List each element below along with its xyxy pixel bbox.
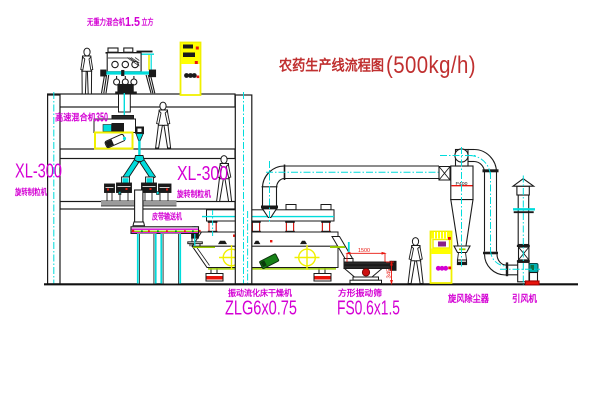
svg-text:旋风除尘器: 旋风除尘器 — [447, 293, 489, 305]
svg-text:ZLG6x0.75: ZLG6x0.75 — [225, 298, 297, 320]
svg-text:方形振动筛: 方形振动筛 — [338, 288, 383, 298]
svg-text:350: 350 — [96, 111, 108, 125]
svg-text:旋转制粒机: 旋转制粒机 — [14, 187, 47, 197]
svg-text:无重力混合机: 无重力混合机 — [86, 17, 125, 27]
svg-text:XL-300: XL-300 — [177, 163, 228, 185]
svg-text:1.5: 1.5 — [125, 15, 140, 29]
svg-text:FS0.6x1.5: FS0.6x1.5 — [337, 298, 400, 320]
svg-text:旋转制粒机: 旋转制粒机 — [176, 189, 211, 199]
svg-text:振动流化床干燥机: 振动流化床干燥机 — [228, 288, 292, 298]
svg-text:立方: 立方 — [142, 17, 154, 27]
svg-text:引风机: 引风机 — [512, 293, 537, 305]
svg-text:XL-300: XL-300 — [15, 161, 62, 183]
svg-text:农药生产线流程图: 农药生产线流程图 — [278, 57, 384, 75]
svg-text:高速混合机: 高速混合机 — [55, 112, 96, 123]
svg-text:345: 345 — [387, 268, 393, 278]
svg-text:皮带输送机: 皮带输送机 — [151, 212, 182, 222]
svg-text:1500: 1500 — [358, 248, 370, 254]
svg-text:(500kg/h): (500kg/h) — [386, 52, 476, 79]
